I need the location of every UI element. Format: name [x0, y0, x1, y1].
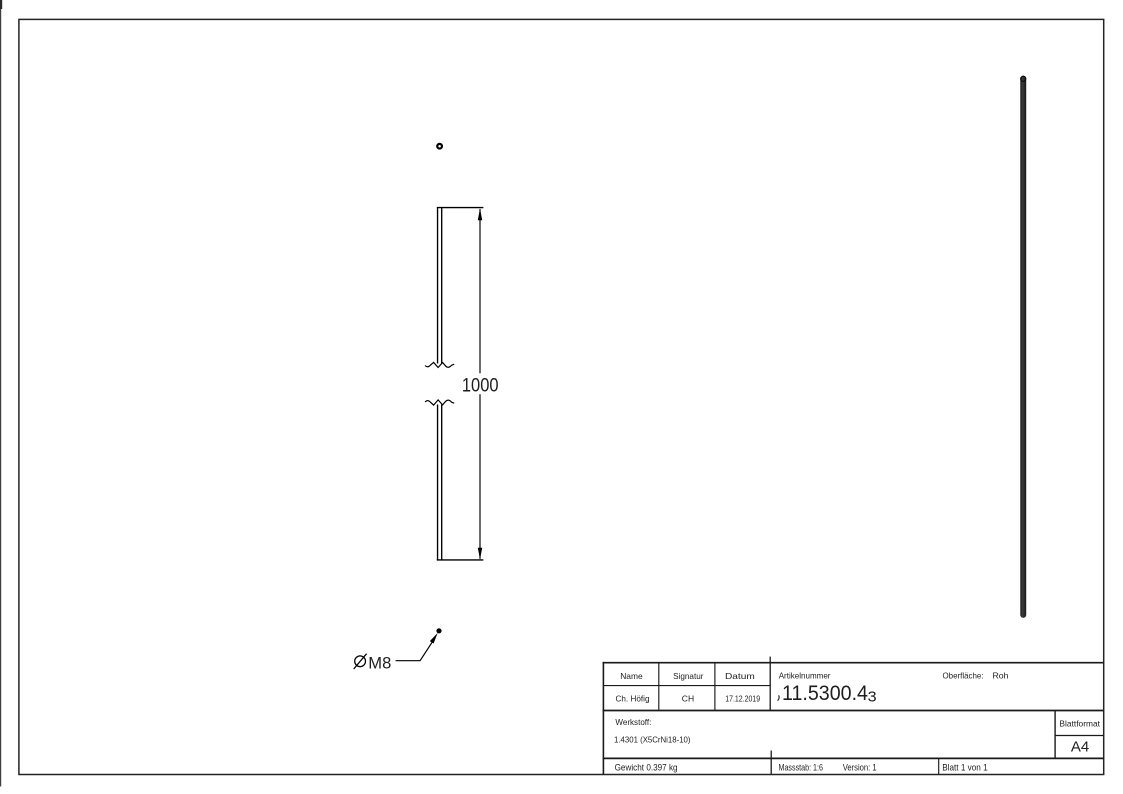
svg-text:Datum: Datum	[725, 671, 755, 681]
svg-text:Signatur: Signatur	[673, 671, 704, 681]
svg-text:Blatt 1 von 1: Blatt 1 von 1	[942, 761, 988, 772]
svg-text:M8: M8	[368, 653, 391, 672]
svg-text:Massstab: 1:6: Massstab: 1:6	[779, 761, 824, 772]
svg-text:Version: 1: Version: 1	[843, 761, 877, 772]
svg-text:Ch. Höfig: Ch. Höfig	[616, 693, 650, 703]
svg-text:1.4301 (X5CrNi18-10): 1.4301 (X5CrNi18-10)	[614, 735, 691, 745]
svg-text:Oberfläche:: Oberfläche:	[943, 671, 984, 681]
svg-text:CH: CH	[682, 693, 694, 703]
svg-text:Artikelnummer: Artikelnummer	[779, 671, 831, 681]
svg-text:A4: A4	[1071, 740, 1089, 756]
svg-text:Werkstoff:: Werkstoff:	[615, 717, 651, 727]
svg-text:Roh: Roh	[993, 671, 1009, 681]
svg-text:11.5300.4: 11.5300.4	[782, 681, 868, 705]
svg-text:17.12.2019: 17.12.2019	[725, 693, 760, 703]
svg-text:Name: Name	[620, 671, 643, 681]
svg-text:Gewicht 0.397 kg: Gewicht 0.397 kg	[615, 761, 678, 772]
svg-text:Blattformat: Blattformat	[1059, 719, 1100, 729]
svg-text:3: 3	[868, 690, 877, 706]
svg-text:1000: 1000	[462, 375, 499, 397]
